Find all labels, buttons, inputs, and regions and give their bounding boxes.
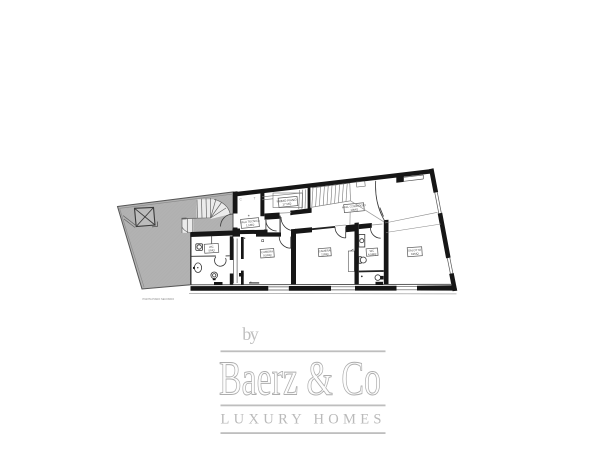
- svg-text:LUXURY HOMES: LUXURY HOMES: [221, 412, 382, 428]
- svg-text:Baerz & Co: Baerz & Co: [219, 352, 381, 405]
- svg-text:PIANTA PIANO SECONDO: PIANTA PIANO SECONDO: [143, 297, 175, 301]
- svg-text:C: C: [240, 198, 243, 202]
- svg-text:4,5MQ: 4,5MQ: [368, 252, 377, 257]
- svg-text:9,5MQ: 9,5MQ: [263, 253, 272, 258]
- svg-text:5MQ: 5MQ: [208, 248, 215, 252]
- svg-text:10MQ: 10MQ: [350, 207, 359, 212]
- svg-text:18MQ: 18MQ: [411, 251, 420, 256]
- svg-text:by: by: [242, 324, 259, 344]
- svg-text:11MQ: 11MQ: [321, 252, 329, 257]
- svg-text:T: T: [254, 197, 256, 201]
